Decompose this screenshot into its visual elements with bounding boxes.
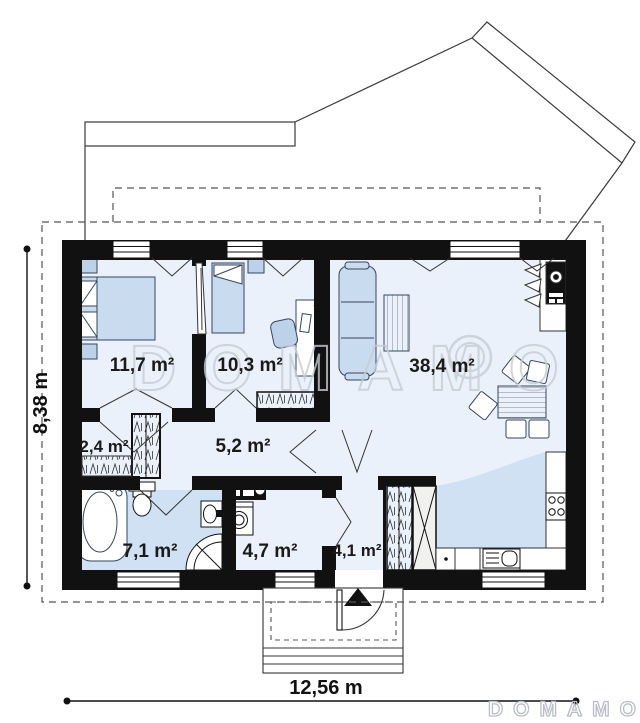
watermark-center: DOMAMO [130, 332, 585, 404]
nightstand [80, 258, 97, 273]
room-label-utility-room: 4,7 m² [243, 541, 298, 562]
roof-outline [85, 22, 635, 248]
window [113, 241, 150, 258]
room-label-entry-hall: 4,1 m² [332, 541, 381, 560]
bed-single [212, 263, 244, 333]
bed-double [77, 277, 155, 340]
room-label-hallway: 5,2 m² [216, 436, 271, 457]
window [117, 572, 180, 588]
width-dimension-label: 12,56 m [289, 677, 362, 699]
stove [546, 493, 566, 520]
porch [263, 588, 403, 673]
fridge [413, 486, 436, 570]
room-label-bathroom: 7,1 m² [123, 541, 178, 562]
window [450, 241, 520, 258]
watermark-center-text: DOMAMO [130, 332, 585, 404]
window [227, 241, 263, 258]
entrance-door-leaf [337, 590, 342, 630]
nightstand [248, 258, 264, 273]
bathtub [77, 483, 127, 561]
room-label-living-room: 38,4 m² [409, 356, 474, 377]
plant-leaves [525, 264, 541, 307]
floor-plan-drawing: 8,38 m 12,56 m DOMAMO DOMAMO 11,7 m² 10,… [0, 0, 640, 723]
height-dimension-label: 8,38 m [30, 372, 52, 434]
nightstand [80, 344, 97, 359]
fireplace [540, 257, 566, 331]
washbasin [201, 501, 222, 527]
window [482, 572, 545, 588]
hall-wardrobe [387, 486, 412, 570]
window [275, 572, 315, 588]
room-label-closet: 2,4 m² [79, 437, 128, 456]
room-label-bedroom-1: 11,7 m² [110, 355, 174, 376]
watermark-corner-text: DOMAMO [488, 698, 640, 721]
kitchen-sink [483, 549, 520, 568]
dimension-height: 8,38 m [24, 246, 53, 590]
closet-rail [82, 456, 132, 476]
floor-plan: 8,38 m 12,56 m DOMAMO DOMAMO 11,7 m² 10,… [0, 0, 640, 723]
room-label-bedroom-2: 10,3 m² [217, 355, 282, 376]
